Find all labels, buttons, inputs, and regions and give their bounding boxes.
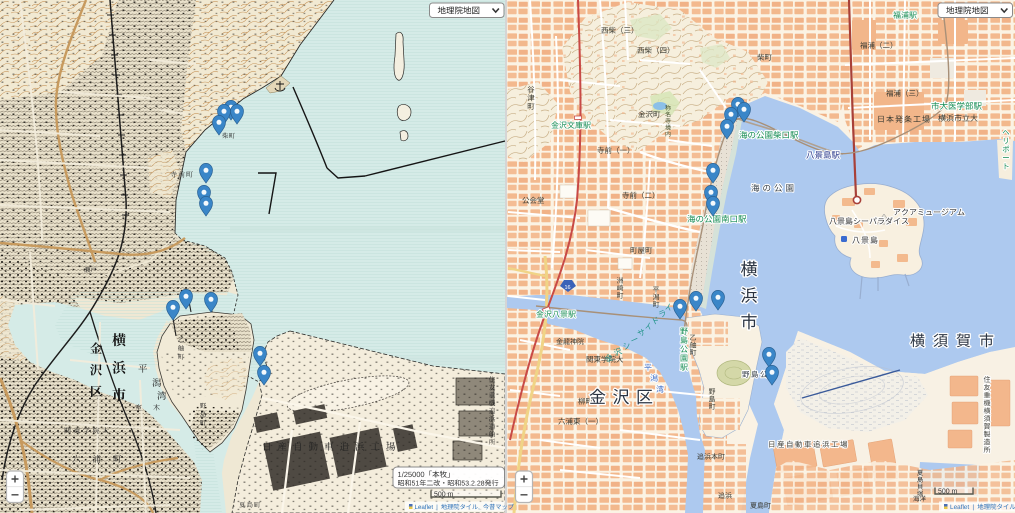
svg-text:16: 16 — [565, 285, 571, 291]
svg-text:500 m: 500 m — [434, 492, 454, 499]
svg-text:500 m: 500 m — [938, 489, 958, 496]
